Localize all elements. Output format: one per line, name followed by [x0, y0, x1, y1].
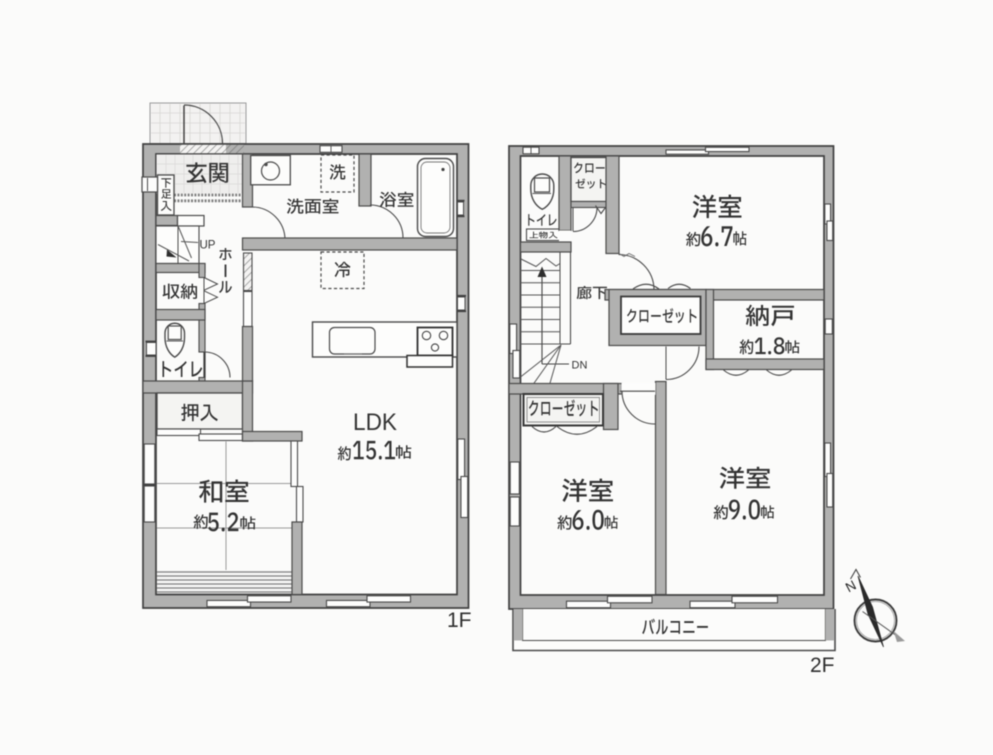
svg-text:2F: 2F [810, 654, 835, 677]
svg-text:1F: 1F [447, 609, 472, 632]
svg-text:DN: DN [572, 360, 588, 372]
svg-text:UP: UP [200, 240, 216, 252]
svg-text:LDK: LDK [353, 409, 398, 436]
